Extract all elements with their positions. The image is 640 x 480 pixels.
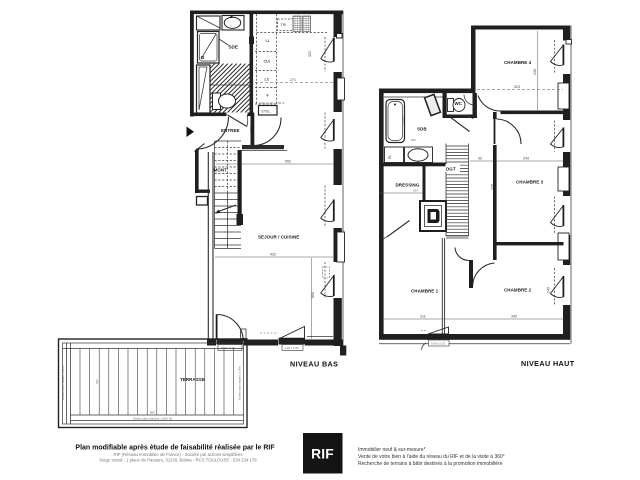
svg-text:523: 523 <box>514 85 520 89</box>
svg-text:SDB: SDB <box>417 127 427 132</box>
svg-text:NIVEAU BAS: NIVEAU BAS <box>290 360 338 369</box>
svg-text:CHAMBRE 1: CHAMBRE 1 <box>411 289 439 294</box>
svg-text:MONT: MONT <box>214 168 228 173</box>
svg-text:034: 034 <box>413 189 418 193</box>
svg-text:552: 552 <box>285 160 291 164</box>
svg-text:DRESSING: DRESSING <box>396 183 420 188</box>
svg-text:TERRASSE: TERRASSE <box>180 377 205 382</box>
svg-text:RIF: RIF <box>311 446 334 461</box>
svg-text:Recherche de terrains à bâtir: Recherche de terrains à bâtir destinés à… <box>358 461 503 467</box>
svg-text:TRI: TRI <box>281 23 287 27</box>
svg-text:432: 432 <box>270 253 276 257</box>
svg-text:CHAMBRE 4: CHAMBRE 4 <box>504 60 532 65</box>
svg-text:NIVEAU HAUT: NIVEAU HAUT <box>521 359 575 368</box>
svg-text:CHAMBRE 3: CHAMBRE 3 <box>516 180 544 185</box>
svg-text:323: 323 <box>308 51 312 57</box>
svg-text:311: 311 <box>420 315 426 319</box>
svg-text:SEJOUR / CUISINE: SEJOUR / CUISINE <box>258 235 299 240</box>
svg-text:236: 236 <box>533 69 537 75</box>
svg-text:Siège social : 1 place de Pava: Siège social : 1 place de Pavaure, 31130… <box>99 458 257 463</box>
svg-text:CHAMBRE 2: CHAMBRE 2 <box>504 288 532 293</box>
svg-text:Garde corps hauteur 1.00m: Garde corps hauteur 1.00m <box>61 365 65 400</box>
svg-text:PL: PL <box>388 155 392 159</box>
svg-text:ENTREE: ENTREE <box>221 128 240 133</box>
svg-text:LC: LC <box>265 78 270 82</box>
svg-text:800: 800 <box>311 292 315 298</box>
svg-text:CUI: CUI <box>264 60 270 64</box>
svg-text:340: 340 <box>511 315 517 319</box>
svg-text:RIF (Réseau Immobilier de Fran: RIF (Réseau Immobilier de France) - Soci… <box>114 452 243 457</box>
svg-text:ETEL: ETEL <box>262 110 271 114</box>
svg-text:1.40 x 1.05: 1.40 x 1.05 <box>285 346 299 350</box>
svg-text:271: 271 <box>290 78 296 82</box>
svg-text:SDE: SDE <box>229 45 238 50</box>
svg-text:Garde corps hauteur 1.00m: Garde corps hauteur 1.00m <box>238 365 242 400</box>
svg-text:0.90 x 2.15: 0.90 x 2.15 <box>221 346 235 350</box>
svg-text:DGT: DGT <box>446 167 456 172</box>
svg-text:0.60 x 0.60 x 2.50 ht: 0.60 x 0.60 x 2.50 ht <box>259 101 285 105</box>
svg-text:Plan modifiable après ètude de: Plan modifiable après ètude de faisabili… <box>75 445 275 452</box>
svg-text:150: 150 <box>228 81 233 85</box>
svg-text:262: 262 <box>95 379 99 384</box>
svg-text:240: 240 <box>547 287 551 293</box>
svg-text:170x75: 170x75 <box>401 115 405 125</box>
svg-text:95: 95 <box>478 157 482 161</box>
svg-text:034: 034 <box>411 138 416 142</box>
svg-text:243: 243 <box>523 157 529 161</box>
svg-text:WC: WC <box>455 101 463 106</box>
svg-text:Garde corps (hauteur 1.00m ht): Garde corps (hauteur 1.00m ht) <box>133 417 172 421</box>
svg-text:Immobilier neuf & sur-mesure*: Immobilier neuf & sur-mesure* <box>358 447 426 453</box>
svg-text:0.90 x 2.15: 0.90 x 2.15 <box>431 342 445 346</box>
svg-text:Vente de votre bien à l'aide d: Vente de votre bien à l'aide du réseau d… <box>358 454 505 460</box>
svg-text:856: 856 <box>150 411 155 415</box>
